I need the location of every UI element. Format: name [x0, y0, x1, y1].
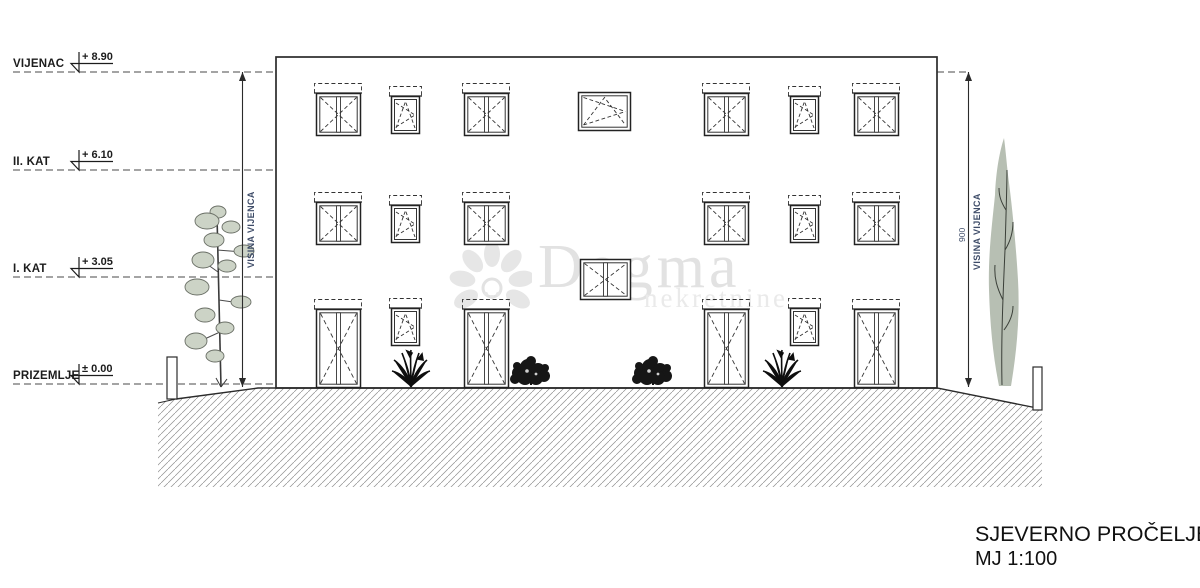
dimension-label-right: VISINA VIJENCA [972, 193, 982, 270]
level-elevation-first-floor: + 3.05 [82, 256, 113, 268]
level-elevation-second-floor: + 6.10 [82, 149, 113, 161]
spiky-plant [763, 350, 801, 387]
window-double [465, 203, 509, 245]
ground-hatch [158, 388, 1042, 487]
dimension-value-right: 900 [957, 228, 967, 242]
window-double [465, 94, 509, 136]
window-double [855, 203, 899, 245]
window-double [855, 94, 899, 136]
window-double [317, 203, 361, 245]
balcony-door [317, 310, 361, 388]
level-label-second-floor: II. KAT [13, 156, 50, 168]
window-double [705, 203, 749, 245]
window-stairwell [581, 260, 631, 300]
window-small [791, 206, 819, 243]
round-bush [632, 356, 672, 385]
level-elevation-vijenac: + 8.90 [82, 51, 113, 63]
ground-floor-openings [317, 309, 899, 388]
window-wide [579, 93, 631, 131]
window-small [791, 309, 819, 346]
drawing-canvas [0, 0, 1200, 588]
boundary-post-right [1033, 367, 1042, 410]
windows-second-floor [317, 93, 899, 136]
balcony-door [705, 310, 749, 388]
window-small [392, 309, 420, 346]
level-elevation-ground-floor: ± 0.00 [82, 363, 113, 375]
level-label-ground-floor: PRIZEMLJE [13, 370, 79, 382]
round-bush [510, 356, 550, 385]
balcony-door [465, 310, 509, 388]
spiky-plant [392, 350, 430, 387]
window-small [392, 97, 420, 134]
level-markers [71, 52, 113, 384]
window-small [392, 206, 420, 243]
balcony-door [855, 310, 899, 388]
level-label-vijenac: VIJENAC [13, 58, 64, 70]
boundary-post-left [167, 357, 177, 399]
drawing-title: SJEVERNO PROČELJE [975, 522, 1200, 547]
window-double [705, 94, 749, 136]
level-label-first-floor: I. KAT [13, 263, 47, 275]
elevation-drawing-sheet: Dogma nekretnine [0, 0, 1200, 588]
tree-left [185, 206, 254, 387]
dimension-label-left: VISINA VIJENCA [246, 191, 256, 268]
window-double [317, 94, 361, 136]
dimension-line-left [239, 72, 246, 387]
drawing-scale: MJ 1:100 [975, 548, 1057, 571]
window-small [791, 97, 819, 134]
cypress-tree-right [989, 138, 1019, 386]
windows-first-floor [317, 203, 899, 245]
